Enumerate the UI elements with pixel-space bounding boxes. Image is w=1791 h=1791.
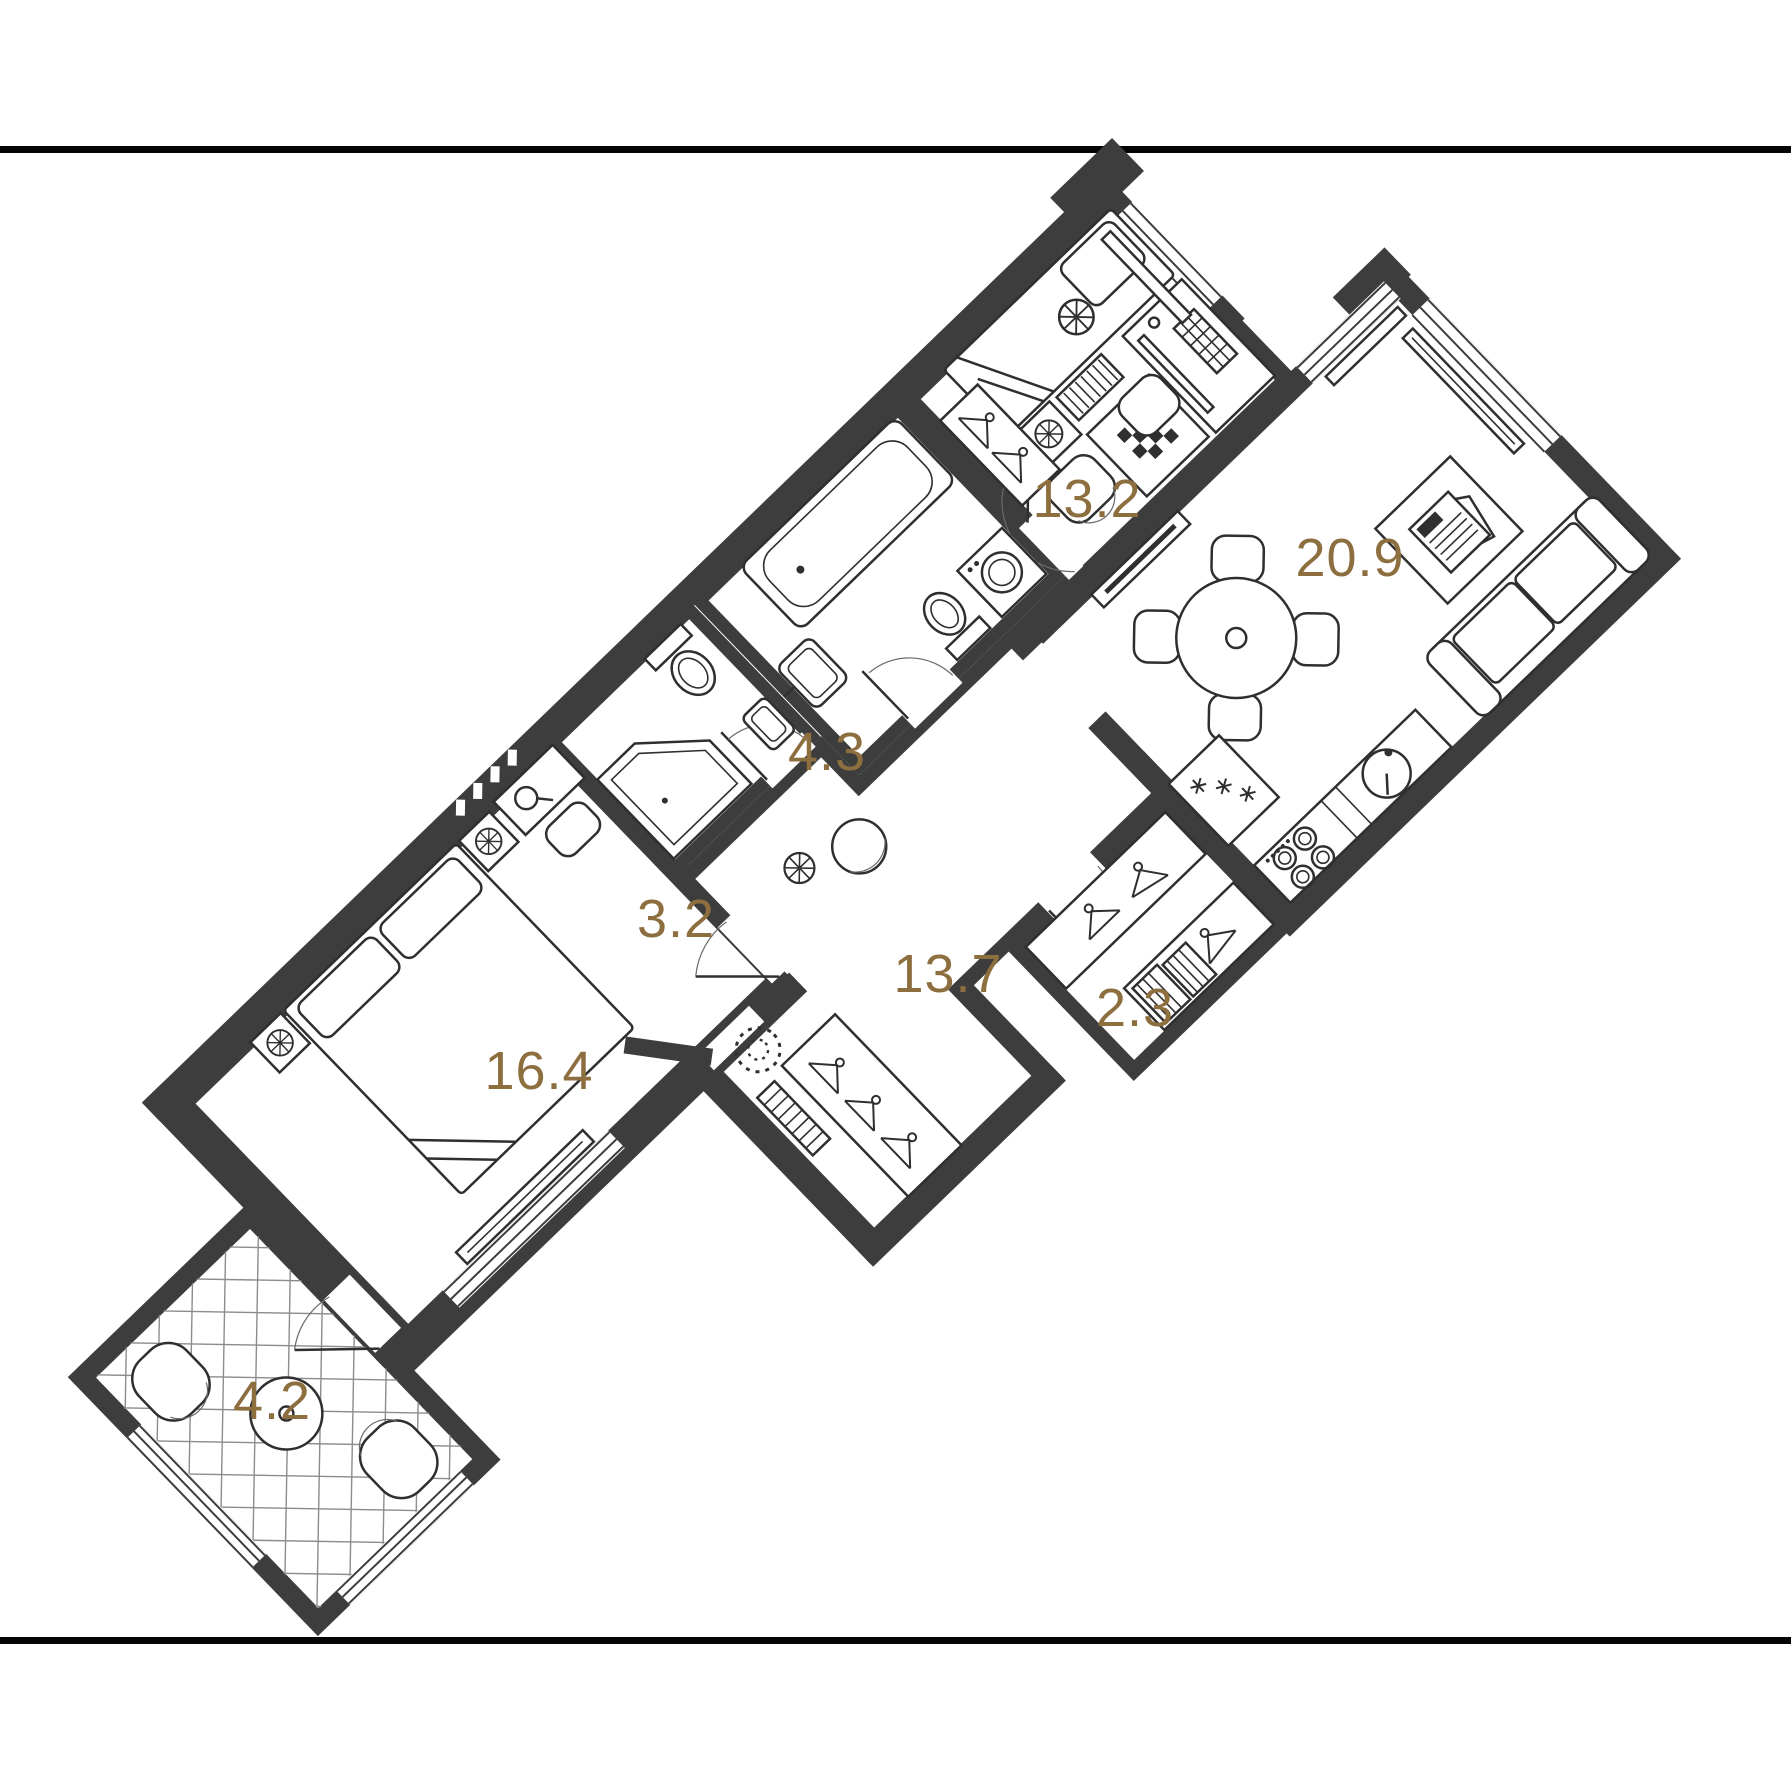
top-border-line: [0, 146, 1791, 153]
label-bedroom-main: 16.4: [484, 1041, 593, 1101]
floor-plan-canvas: 13.2 20.9 4.3 3.2 13.7 2.3 16.4 4.2: [0, 0, 1791, 1791]
label-living-kitchen: 20.9: [1295, 528, 1404, 588]
label-bedroom-top: 13.2: [1032, 469, 1141, 529]
label-bathroom: 4.3: [788, 722, 866, 782]
label-closet: 2.3: [1096, 978, 1174, 1038]
apartment-plan: [0, 55, 1675, 1791]
bottom-border-line: [0, 1637, 1791, 1644]
label-balcony: 4.2: [233, 1371, 311, 1431]
label-shower-room: 3.2: [637, 889, 715, 949]
label-hallway: 13.7: [893, 944, 1002, 1004]
